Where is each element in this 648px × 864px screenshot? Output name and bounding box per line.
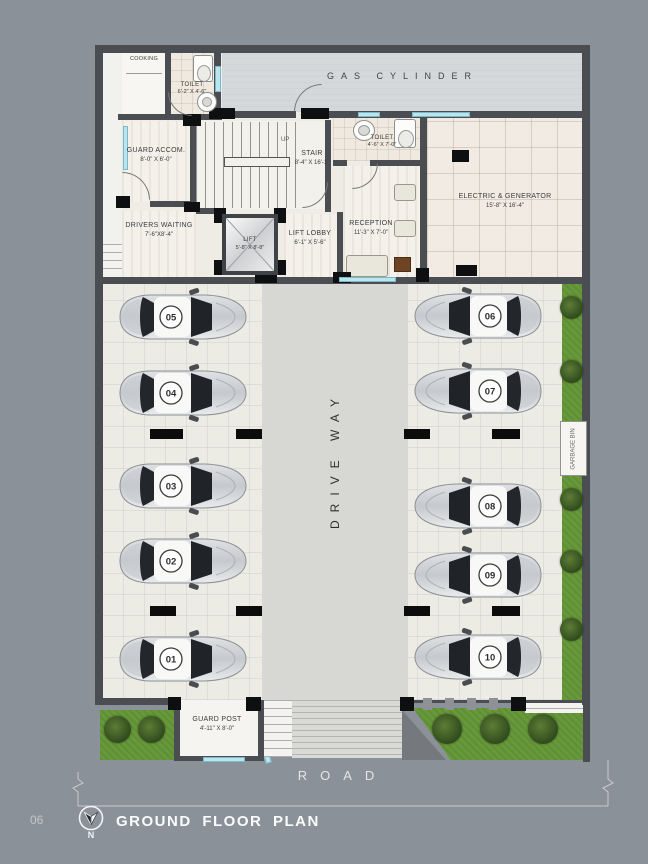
guard-accom-name: GUARD ACCOM. [122, 146, 190, 156]
side-steps [102, 244, 122, 274]
toilet-top-name: TOILET [166, 81, 218, 89]
sofa [346, 255, 388, 277]
room-label-lift-lobby: LIFT LOBBY 6'-1" X 5'-6" [282, 229, 338, 247]
room-label-electric: ELECTRIC & GENERATOR 15'-8" X 16'-4" [432, 192, 578, 210]
svg-text:06: 06 [485, 312, 496, 323]
bush [432, 714, 462, 744]
room-gas-cylinder-floor [222, 52, 582, 112]
bush [560, 550, 583, 573]
north-arrow-icon: N [76, 804, 106, 840]
svg-text:07: 07 [485, 387, 496, 398]
stair-handrail [224, 157, 290, 167]
toilet-mid-name: TOILET [356, 134, 408, 142]
boundary-post [445, 698, 454, 710]
window [412, 112, 470, 117]
svg-text:04: 04 [166, 389, 177, 400]
svg-text:05: 05 [166, 313, 177, 324]
side-table [394, 257, 411, 272]
wheel-stop [492, 429, 520, 439]
svg-text:09: 09 [485, 571, 496, 582]
toilet-wc-icon [193, 55, 213, 82]
wall-segment [190, 120, 196, 212]
reception-name: RECEPTION [340, 219, 402, 229]
armchair [394, 184, 416, 201]
bush [528, 714, 558, 744]
floor-plan-canvas: LIFT 5'-8" X 8'-8" COOKING TOILET 6'-2" … [0, 0, 648, 864]
column [452, 150, 469, 162]
room-label-drivers-waiting: DRIVERS WAITING 7'-6"X8'-4" [122, 221, 196, 239]
column [183, 114, 201, 126]
parking-spot-02: 02 [113, 532, 253, 590]
room-label-guard-accom: GUARD ACCOM. 8'-0" X 6'-0" [122, 146, 190, 164]
column [416, 268, 429, 282]
parking-spot-05: 05 [113, 288, 253, 346]
toilet-mid-size: 4'-6" X 7'-0" [356, 142, 408, 150]
room-label-lift: LIFT 5'-8" X 8'-8" [236, 236, 265, 252]
sink-basin [202, 97, 212, 107]
wheel-stop [150, 606, 176, 616]
north-label: N [88, 830, 95, 840]
wheel-stop [236, 606, 262, 616]
svg-text:01: 01 [166, 655, 177, 666]
window [358, 112, 380, 117]
wall-segment [420, 114, 427, 280]
lift-shaft: LIFT 5'-8" X 8'-8" [222, 214, 278, 275]
column [400, 697, 414, 711]
lift-lobby-size: 6'-1" X 5'-6" [282, 239, 338, 247]
room-label-toilet-top: TOILET 6'-2" X 4'-6" [166, 81, 218, 97]
driveway-label-wrap: DRIVE WAY [262, 380, 408, 540]
svg-text:10: 10 [485, 653, 496, 664]
window [203, 757, 245, 762]
guard-post-name: GUARD POST [176, 715, 258, 725]
wheel-stop [492, 606, 520, 616]
electric-name: ELECTRIC & GENERATOR [432, 192, 578, 202]
guard-accom-size: 8'-0" X 6'-0" [122, 156, 190, 164]
wheel-stop [236, 429, 262, 439]
svg-text:02: 02 [166, 557, 177, 568]
bush [560, 618, 583, 641]
column [246, 697, 261, 711]
reception-size: 11'-3" X 7'-0" [340, 229, 402, 237]
parking-spot-10: 10 [408, 628, 548, 686]
window [339, 277, 396, 282]
boundary-post [423, 698, 432, 710]
guard-post-size: 4'-11" X 8'-0" [176, 725, 258, 733]
wall-segment [582, 45, 590, 705]
parking-spot-03: 03 [113, 457, 253, 515]
room-label-guard-post: GUARD POST 4'-11" X 8'-0" [176, 715, 258, 733]
cooking-counter-line [126, 73, 162, 74]
parking-spot-04: 04 [113, 364, 253, 422]
page-number: 06 [30, 813, 43, 827]
svg-text:08: 08 [485, 502, 496, 513]
room-label-cooking: COOKING [120, 56, 168, 64]
column [456, 265, 477, 276]
room-label-gas-cylinder: GAS CYLINDER [225, 71, 580, 81]
stair-size: 8'-4" X 16'-1" [288, 159, 336, 167]
wc-bowl [197, 65, 211, 82]
parking-spot-06: 06 [408, 287, 548, 345]
wheel-stop [150, 429, 183, 439]
bush [560, 360, 583, 383]
wall-segment [102, 698, 176, 705]
wall-segment [583, 700, 590, 762]
lift-name: LIFT [236, 236, 265, 244]
wall-segment [413, 700, 583, 703]
bush [480, 714, 510, 744]
garbage-bin: GARBAGE BIN [560, 421, 587, 476]
electric-size: 15'-8" X 16'-4" [432, 202, 578, 210]
guard-post-steps [264, 700, 292, 757]
column [168, 697, 181, 710]
wheel-stop [404, 606, 430, 616]
bush [104, 716, 131, 743]
drivers-waiting-name: DRIVERS WAITING [122, 221, 196, 231]
road-label: ROAD [95, 768, 590, 783]
cooking-name: COOKING [120, 56, 168, 64]
column [511, 697, 526, 711]
bush [560, 296, 583, 319]
column [184, 202, 200, 212]
parking-spot-09: 09 [408, 546, 548, 604]
stair-name: STAIR [288, 149, 336, 159]
svg-text:03: 03 [166, 482, 177, 493]
boundary-post [467, 698, 476, 710]
room-label-reception: RECEPTION 11'-3" X 7'-0" [340, 219, 402, 237]
parking-spot-07: 07 [408, 362, 548, 420]
room-label-toilet-mid: TOILET 4'-6" X 7'-0" [356, 134, 408, 150]
stair-direction-label: UP [281, 137, 289, 143]
room-label-stair: STAIR 8'-4" X 16'-1" [288, 149, 336, 167]
parking-spot-08: 08 [408, 477, 548, 535]
bush [560, 488, 583, 511]
bush [138, 716, 165, 743]
plan-title: GROUND FLOOR PLAN [116, 813, 320, 830]
drivers-waiting-size: 7'-6"X8'-4" [122, 231, 196, 239]
driveway-label: DRIVE WAY [328, 391, 342, 529]
garbage-bin-label: GARBAGE BIN [571, 428, 577, 469]
toilet-top-size: 6'-2" X 4'-6" [166, 89, 218, 97]
wall-segment [95, 45, 103, 705]
lift-lobby-name: LIFT LOBBY [282, 229, 338, 239]
lift-size: 5'-8" X 8'-8" [236, 245, 265, 253]
parking-spot-01: 01 [113, 630, 253, 688]
entry-ramp [292, 700, 402, 758]
boundary-post [489, 698, 498, 710]
